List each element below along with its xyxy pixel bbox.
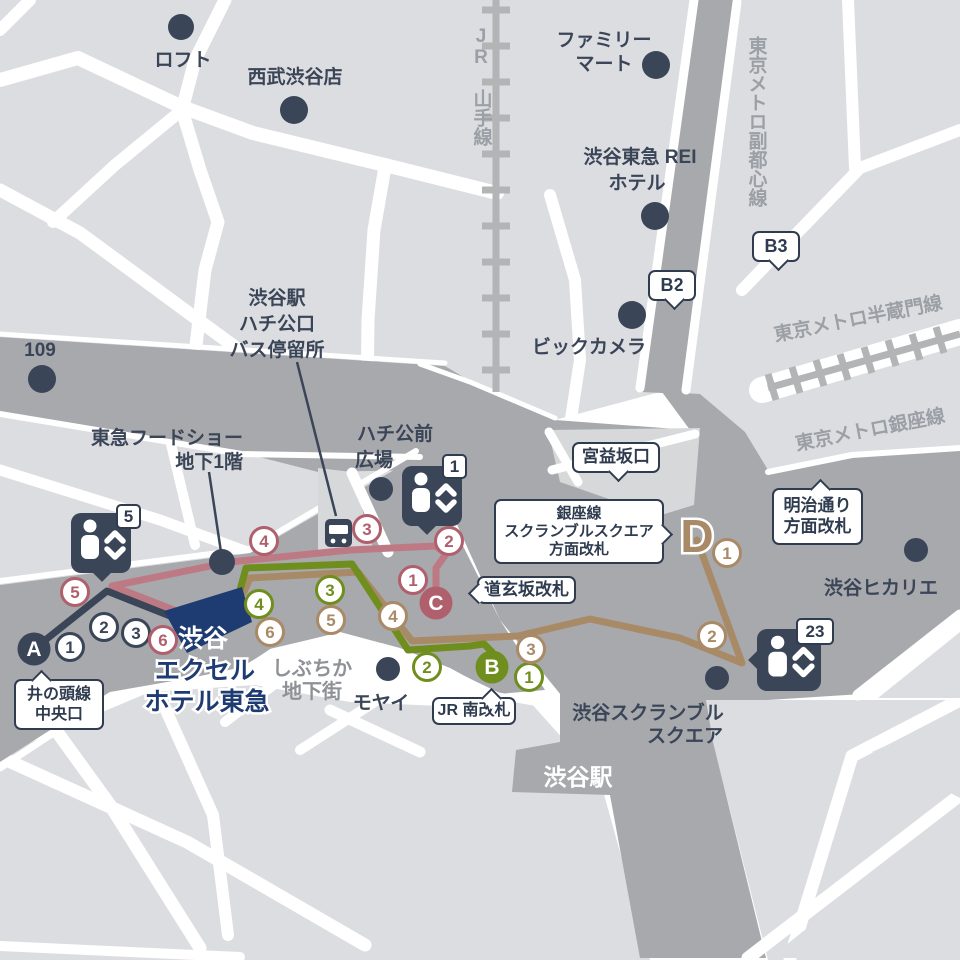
- rail-label-fukutoshin: 東京メトロ副都心線: [746, 35, 769, 208]
- svg-text:1: 1: [65, 638, 74, 657]
- moyai-label: モヤイ: [353, 693, 410, 714]
- seibu-label: 西武渋谷店: [247, 65, 342, 88]
- svg-text:4: 4: [388, 607, 398, 626]
- ginza-scramble-gate-badge: 銀座線 スクランブルスクエア 方面改札: [494, 499, 664, 564]
- svg-text:2: 2: [444, 532, 453, 551]
- svg-text:B: B: [484, 656, 499, 679]
- moyai-dot: [376, 657, 400, 681]
- meiji-gate-line2: 方面改札: [784, 517, 852, 537]
- svg-text:6: 6: [158, 631, 167, 650]
- rei-hotel-dot: [641, 202, 669, 230]
- familymart-label-1: ファミリー: [556, 30, 651, 51]
- foodshow-dot: [209, 549, 235, 575]
- familymart-dot: [642, 51, 670, 79]
- rail-label-jr-yamanote: JR 山手線: [471, 26, 493, 147]
- svg-text:1: 1: [722, 544, 731, 563]
- dogenzaka-gate-label: 道玄坂改札: [484, 580, 569, 600]
- svg-text:2: 2: [99, 618, 108, 637]
- svg-text:5: 5: [326, 611, 335, 630]
- 109-label: 109: [24, 340, 56, 361]
- inokashira-gate-line2: 中央口: [35, 705, 83, 724]
- svg-text:1: 1: [408, 571, 417, 590]
- svg-text:5: 5: [70, 583, 79, 602]
- hachiko-square-label-2: 広場: [355, 448, 393, 471]
- meiji-gate-line1: 明治通り: [784, 496, 852, 516]
- inokashira-gate-line1: 井の頭線: [27, 685, 91, 704]
- bus-stop-label-2: ハチ公口: [239, 313, 315, 335]
- loft-dot: [168, 14, 194, 40]
- shibuya-access-map: JR 山手線 東京メトロ副都心線 東京メトロ半蔵門線 東京メトロ銀座線: [0, 0, 960, 960]
- ginza-scramble-gate-line1: 銀座線: [556, 505, 601, 523]
- biccamera-dot: [618, 301, 646, 329]
- svg-text:1: 1: [524, 668, 533, 687]
- hachiko-square-label-1: ハチ公前: [357, 422, 433, 445]
- jr-south-gate-label: JR 南改札: [438, 701, 511, 720]
- hikarie-dot: [904, 538, 928, 562]
- svg-text:2: 2: [707, 627, 716, 646]
- seibu-dot: [280, 96, 308, 124]
- svg-text:3: 3: [325, 581, 334, 600]
- shibuya-station-label: 渋谷駅: [544, 764, 613, 790]
- ginza-scramble-gate-line2: スクランブルスクエア: [504, 523, 654, 541]
- shibuchika-label-1: しぶちか: [272, 657, 352, 680]
- svg-text:A: A: [26, 638, 41, 661]
- elevator-1-number: 1: [442, 454, 467, 479]
- svg-text:C: C: [428, 592, 443, 615]
- scramble-square-label-2: スクエア: [647, 725, 723, 747]
- inokashira-gate-badge: 井の頭線 中央口: [14, 679, 104, 730]
- svg-text:3: 3: [131, 624, 140, 643]
- map-canvas: JR 山手線 東京メトロ副都心線 東京メトロ半蔵門線 東京メトロ銀座線: [0, 0, 960, 960]
- svg-text:6: 6: [265, 623, 274, 642]
- svg-text:3: 3: [526, 640, 535, 659]
- rei-hotel-label-2: ホテル: [608, 173, 665, 194]
- elevator-5-number: 5: [116, 504, 141, 529]
- svg-text:4: 4: [259, 532, 269, 551]
- meiji-gate-badge: 明治通り 方面改札: [772, 488, 863, 545]
- bus-stop-label-3: バス停留所: [229, 338, 324, 361]
- scramble-square-dot: [705, 666, 729, 690]
- hotel-name-1: 渋谷: [178, 625, 229, 653]
- bus-stop-label-1: 渋谷駅: [248, 286, 306, 309]
- scramble-square-label-1: 渋谷スクランブル: [572, 701, 723, 724]
- hotel-name-2: エクセル: [155, 657, 255, 685]
- svg-text:2: 2: [422, 658, 431, 677]
- exit-c-marker: C: [420, 587, 453, 620]
- exit-b2-badge: B2: [648, 270, 696, 301]
- hikarie-label: 渋谷ヒカリエ: [824, 576, 938, 599]
- jr-south-gate-badge: JR 南改札: [432, 697, 516, 725]
- loft-label: ロフト: [154, 50, 211, 71]
- rei-hotel-label-1: 渋谷東急 REI: [584, 145, 697, 168]
- dogenzaka-gate-badge: 道玄坂改札: [477, 576, 576, 604]
- exit-d-marker: D: [680, 510, 713, 562]
- svg-text:4: 4: [254, 595, 264, 614]
- shibuchika-label-2: 地下街: [282, 679, 342, 703]
- bus-icon: [325, 519, 352, 547]
- exit-b-marker: B: [476, 651, 509, 684]
- foodshow-label-1: 東急フードショー: [91, 426, 243, 449]
- foodshow-label-2: 地下1階: [175, 450, 243, 473]
- biccamera-label: ビックカメラ: [532, 336, 646, 358]
- familymart-label-2: マート: [575, 54, 632, 75]
- miyamasuzaka-gate-badge: 宮益坂口: [572, 442, 660, 473]
- exit-a-marker: A: [18, 633, 51, 666]
- svg-text:3: 3: [362, 520, 371, 539]
- ginza-scramble-gate-line3: 方面改札: [549, 541, 609, 559]
- 109-dot: [28, 365, 56, 393]
- elevator-23-number: 23: [796, 618, 834, 645]
- exit-b3-badge: B3: [752, 231, 800, 262]
- hotel-name-3: ホテル東急: [144, 688, 269, 716]
- hachiko-square-dot: [369, 477, 393, 501]
